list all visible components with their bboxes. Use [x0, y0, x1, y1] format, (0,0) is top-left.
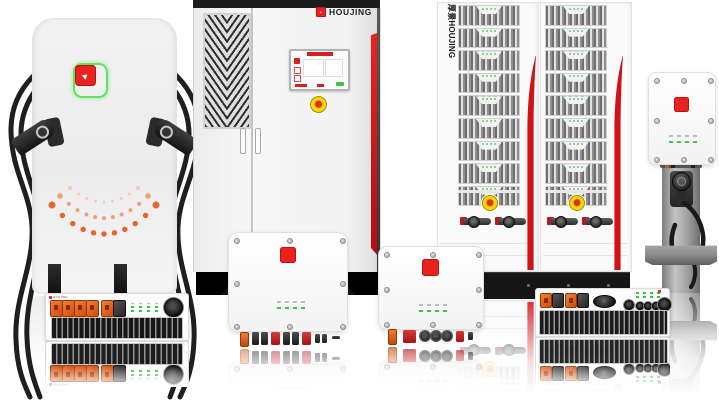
indicator-dot: [153, 202, 160, 209]
cabinet-brand-text: HOUJING: [329, 7, 372, 17]
status-leds-row: [669, 135, 697, 137]
round-connector: [644, 302, 652, 310]
cabinet-door-handle: [255, 128, 261, 154]
indicator-dot: [112, 230, 117, 235]
screw: [430, 252, 436, 258]
status-leds-row: [636, 292, 660, 294]
signal-connector: [113, 300, 126, 317]
screw: [384, 287, 390, 293]
rack-module-slot: [458, 50, 520, 71]
dc-breaker-switch: [582, 216, 613, 226]
status-leds-row: [277, 301, 305, 303]
gun-ring: [157, 123, 175, 141]
rotary-knob: [593, 295, 616, 308]
module-led-notch: [476, 51, 502, 59]
rack-module-slot: [458, 163, 520, 184]
indicator-dot: [84, 212, 88, 216]
screw: [476, 252, 482, 258]
indicator-dot: [120, 212, 124, 216]
emergency-stop-button: [310, 96, 327, 113]
screw: [708, 157, 714, 163]
screw: [430, 322, 436, 328]
status-leds-row: [419, 304, 447, 306]
indicator-dot: [122, 227, 127, 232]
product-showcase: HOUJING HOUJING: [0, 0, 719, 400]
cabinet-brand-logo: HOUJING: [316, 7, 372, 17]
rack-red-swoosh: [523, 56, 536, 270]
brand-dot-icon: [658, 290, 661, 293]
rack-red-swoosh: [610, 56, 623, 270]
brand-arrow-icon: [316, 7, 326, 17]
cabinet-vent-grille: [203, 13, 251, 129]
screw: [340, 281, 346, 287]
mini-brand-logo: HOUJING: [49, 295, 68, 299]
status-leds-row: [277, 307, 305, 309]
rack-module-slot: [458, 28, 520, 49]
screw: [234, 238, 240, 244]
station-brand-logo: [73, 63, 108, 98]
brand-dot-icon: [49, 296, 52, 299]
screw: [476, 287, 482, 293]
rack-vertical-brand-label: 厚景HOUJING: [446, 4, 457, 96]
module-led-notch: [476, 29, 502, 37]
indicator-dot: [101, 231, 106, 236]
module-led-notch: [563, 164, 589, 172]
indicator-dot: [70, 221, 75, 226]
rack-module-slot: [545, 5, 607, 26]
dc-connector: [565, 293, 577, 308]
screw: [708, 78, 714, 84]
signal-connector: [577, 293, 589, 308]
rack-emergency-stop: [482, 195, 498, 211]
wall-charger-unit: [648, 72, 714, 163]
indicator-dot: [128, 208, 132, 212]
screw: [384, 252, 390, 258]
indicator-dot: [91, 230, 96, 235]
charging-indicator-arc-leds: [48, 178, 163, 244]
status-led-group: [146, 303, 150, 312]
rack-module-slot: [458, 5, 520, 26]
bottom-connector-row: [378, 329, 482, 345]
module-led-notch: [563, 96, 589, 104]
indicator-dot: [120, 197, 123, 200]
round-connector: [636, 302, 644, 310]
module-led-notch: [476, 142, 502, 150]
indicator-dot: [94, 200, 97, 203]
pedestal-arms: [645, 243, 717, 265]
rack-module-slot: [545, 73, 607, 94]
module-led-notch: [476, 164, 502, 172]
rack-module-slot: [545, 118, 607, 139]
output-round-connector: [164, 298, 183, 317]
station-foot: [114, 264, 127, 294]
status-led-group: [154, 303, 158, 312]
module-led-notch: [476, 119, 502, 127]
screw: [654, 118, 660, 124]
cabinet-door-handle: [240, 128, 246, 154]
status-led-group: [138, 303, 142, 312]
mini-brand-logo: [658, 290, 661, 293]
status-leds-row: [669, 141, 697, 143]
screw: [234, 281, 240, 287]
rack-b-modules: [545, 5, 607, 208]
indicator-dot: [60, 213, 65, 218]
screw: [287, 324, 293, 330]
indicator-dot: [111, 200, 114, 203]
wallbox-b: [378, 246, 482, 346]
mini-brand-text: HOUJING: [53, 295, 68, 299]
rack-module-slot: [545, 163, 607, 184]
station-foot: [48, 264, 61, 294]
indicator-dot: [102, 216, 106, 220]
bottom-connector-row: [228, 331, 346, 346]
screw: [384, 322, 390, 328]
cabinet-touchscreen: [289, 49, 350, 91]
ev-station-body: [32, 18, 177, 294]
cabinet-right-edge: [377, 8, 380, 272]
module-led-notch: [563, 119, 589, 127]
rack-module-slot: [545, 141, 607, 162]
screw: [287, 238, 293, 244]
module-led-notch: [476, 6, 502, 14]
status-leds-row: [636, 296, 660, 298]
status-leds-row: [419, 310, 447, 312]
brand-arrow-icon: [674, 97, 689, 112]
dc-breaker-switch: [495, 216, 526, 226]
indicator-dot: [145, 193, 151, 199]
rack-module-slot: [545, 28, 607, 49]
dc-breaker-switch: [547, 216, 578, 226]
module-led-notch: [563, 29, 589, 37]
rack-a-modules: [458, 5, 520, 208]
rack-module-slot: [458, 141, 520, 162]
rack-cabinets: 厚景HOUJING: [437, 0, 630, 272]
module-led-notch: [563, 6, 589, 14]
brand-arrow-icon: [75, 65, 96, 86]
rack-module-slot: [458, 73, 520, 94]
round-connector: [624, 300, 634, 310]
screw: [681, 157, 687, 163]
module-led-notch: [563, 142, 589, 150]
indicator-dot: [143, 213, 148, 218]
indicator-dot: [57, 193, 63, 199]
screw: [654, 157, 660, 163]
signal-connector: [552, 293, 564, 308]
dc-connector: [86, 300, 99, 317]
charger-cable: [645, 163, 717, 293]
charger-pedestal: [645, 163, 717, 293]
indicator-dot: [77, 193, 80, 196]
module-led-notch: [476, 96, 502, 104]
rack-module-slot: [458, 118, 520, 139]
indicator-dot: [137, 202, 141, 206]
dc-connector: [540, 293, 552, 308]
screw: [654, 78, 660, 84]
vent-grille: [539, 310, 668, 335]
screw: [340, 238, 346, 244]
module-led-notch: [563, 51, 589, 59]
indicator-dot: [136, 186, 140, 190]
indicator-dot: [49, 202, 56, 209]
screw: [340, 324, 346, 330]
status-led-group: [130, 303, 134, 312]
rack-rail: [458, 190, 520, 193]
rack-module-slot: [545, 50, 607, 71]
brand-arrow-icon: [280, 247, 296, 263]
vent-grille: [51, 317, 183, 339]
screw: [234, 324, 240, 330]
indicator-dot: [103, 201, 106, 204]
indicator-dot: [67, 202, 71, 206]
brand-arrow-icon: [422, 259, 439, 276]
rack-rail: [545, 190, 607, 193]
cabinet-red-stripe: [371, 33, 377, 257]
wallbox-b-face: [378, 246, 484, 330]
module-led-notch: [476, 74, 502, 82]
rack-module-slot: [458, 95, 520, 116]
indicator-dot: [128, 193, 131, 196]
rectifier-module: HOUJING: [45, 293, 189, 341]
wallbox-a: [228, 232, 346, 348]
screw: [681, 78, 687, 84]
screw: [708, 118, 714, 124]
screw: [476, 322, 482, 328]
rack-emergency-stop: [569, 195, 585, 211]
rack-module-slot: [545, 95, 607, 116]
indicator-dot: [81, 227, 86, 232]
indicator-dot: [93, 215, 97, 219]
indicator-dot: [86, 197, 89, 200]
dc-breaker-switch: [460, 216, 491, 226]
indicator-dot: [111, 215, 115, 219]
wallbox-a-face: [228, 232, 348, 332]
wall-charger-face: [648, 72, 716, 165]
rectifier-module-long: [535, 288, 670, 337]
indicator-dot: [68, 186, 72, 190]
module-led-notch: [563, 74, 589, 82]
indicator-dot: [133, 221, 138, 226]
indicator-dot: [76, 208, 80, 212]
